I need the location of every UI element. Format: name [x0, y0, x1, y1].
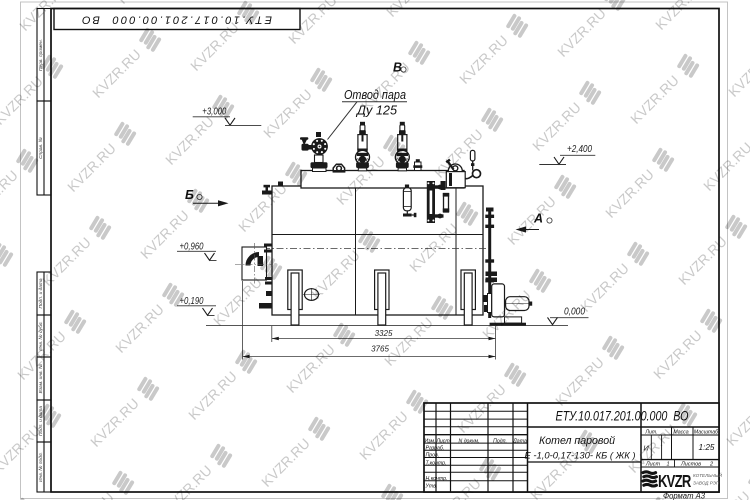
svg-text:Листов: Листов: [680, 462, 701, 468]
svg-text:1:25: 1:25: [699, 443, 715, 452]
svg-text:KVZR: KVZR: [658, 471, 692, 491]
svg-text:Дата: Дата: [512, 438, 527, 444]
svg-text:КОТЕЛЬНЫЙ: КОТЕЛЬНЫЙ: [693, 471, 723, 478]
svg-text:Инв. № подл.: Инв. № подл.: [38, 452, 44, 482]
svg-text:ЗАВОД РЭП: ЗАВОД РЭП: [693, 481, 720, 486]
svg-text:+2,400: +2,400: [567, 144, 592, 155]
svg-text:Лист: Лист: [435, 438, 450, 444]
svg-text:Изм.: Изм.: [424, 438, 435, 444]
svg-text:Т.контр.: Т.контр.: [426, 460, 447, 466]
svg-text:Формат А3: Формат А3: [663, 491, 705, 500]
svg-text:N докум.: N докум.: [459, 438, 480, 444]
svg-text:Котел паровой: Котел паровой: [539, 435, 615, 447]
svg-text:Масштаб: Масштаб: [694, 429, 719, 435]
svg-text:Справ. №: Справ. №: [38, 137, 44, 159]
svg-text:Разраб.: Разраб.: [426, 445, 445, 451]
svg-text:Подп.: Подп.: [493, 438, 507, 444]
svg-text:Утв.: Утв.: [426, 483, 438, 489]
svg-text:Н.контр.: Н.контр.: [426, 476, 448, 482]
svg-text:Пров.: Пров.: [426, 453, 440, 459]
svg-text:1: 1: [666, 462, 669, 468]
svg-text:3325: 3325: [375, 329, 393, 338]
svg-text:2: 2: [709, 462, 713, 468]
